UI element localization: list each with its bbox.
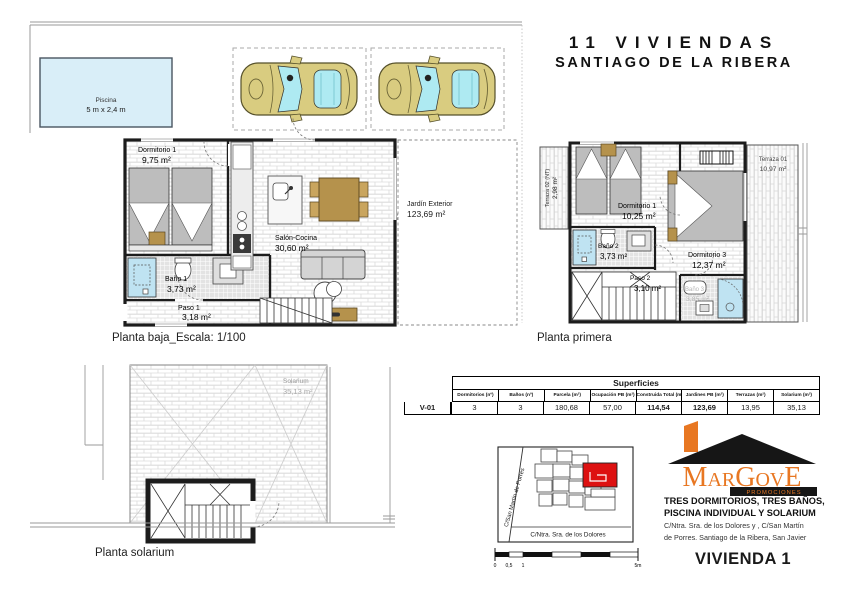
project-title: 11 VIVIENDAS SANTIAGO DE LA RIBERA [535, 33, 813, 71]
room-area: 3,73 m² [600, 252, 627, 261]
ground-floor-caption: Planta baja_Escala: 1/100 [112, 332, 246, 344]
shower [718, 279, 743, 318]
table-header-row: Dormitorios (nº) Baños (nº) Parcela (m²)… [452, 390, 820, 402]
table-cell: 3 [451, 402, 498, 415]
room-area: 3,18 m² [182, 312, 211, 322]
terrace-02-label: Terraza 02 (NT) [545, 169, 551, 208]
table-cell: 35,13 [774, 402, 820, 415]
sofa [301, 250, 365, 279]
room-area: 12,37 m² [692, 260, 726, 270]
pool: Piscina 5 m x 2,4 m [40, 58, 172, 127]
room-label: Baño 2 [598, 243, 619, 250]
car-icon [379, 56, 495, 122]
room-label: Paso 1 [178, 305, 200, 312]
column-header: Baños (nº) [499, 390, 545, 402]
radiator-icon [700, 151, 733, 164]
garden-area: 123,69 m² [407, 209, 445, 219]
terrace-01-label: Terraza 01 [759, 157, 788, 163]
room-area: 35,13 m² [283, 387, 313, 396]
table-cell: 57,00 [590, 402, 636, 415]
column-header: Dormitorios (nº) [453, 390, 499, 402]
room-label: Dormitorio 1 [138, 147, 176, 154]
first-floor-caption: Planta primera [537, 332, 612, 344]
stairs [572, 272, 676, 320]
room-label: Salón-Cocina [275, 235, 317, 242]
column-header: Solarium (m²) [774, 390, 819, 402]
terrace-02: Terraza 02 (NT) 2,98 m² [540, 147, 568, 229]
kitchen-counter [231, 142, 253, 270]
chimney-shape [684, 421, 698, 452]
address-line: de Porres. Santiago de la Ribera, San Ja… [664, 533, 822, 543]
features-line: PISCINA INDIVIDUAL Y SOLARIUM [664, 508, 822, 520]
bed-double [668, 171, 743, 241]
row-label: V-01 [404, 402, 451, 415]
room-area: 9,75 m² [142, 155, 171, 165]
surfaces-table: Superficies Dormitorios (nº) Baños (nº) … [404, 376, 820, 415]
column-header: Parcela (m²) [545, 390, 591, 402]
room-label: Baño 3 [685, 287, 705, 293]
room-area: 3,85 m² [686, 296, 710, 303]
ground-floor-plan: Piscina 5 m x 2,4 m [25, 18, 525, 330]
scale-tick: 1 [522, 563, 525, 569]
highlighted-parcel [583, 463, 617, 487]
kitchen-island [268, 176, 302, 224]
column-header: Terrazas (m²) [728, 390, 774, 402]
terrace-01-area: 10,97 m² [760, 166, 788, 173]
project-title-line1: 11 VIVIENDAS [535, 33, 813, 53]
table-cell: 114,54 [636, 402, 682, 415]
scale-tick: 5m [635, 563, 642, 569]
project-title-line2: SANTIAGO DE LA RIBERA [535, 55, 813, 71]
stairs [260, 298, 332, 323]
solarium-plan: Solarium 35,13 m² [25, 353, 410, 578]
room-area: 3,10 m² [634, 284, 661, 293]
solarium-caption: Planta solarium [95, 547, 174, 559]
shower [128, 258, 156, 297]
site-map: C/Ntra. Sra. de los Dolores C/San Martín… [493, 443, 648, 578]
column-header: Jardines PB (m²) [682, 390, 728, 402]
unit-label: VIVIENDA 1 [664, 550, 822, 569]
street-bottom-label: C/Ntra. Sra. de los Dolores [530, 532, 605, 539]
room-area: 10,25 m² [622, 211, 656, 221]
car-icon [241, 56, 357, 122]
scale-bar: 0 0,5 1 5m [494, 548, 642, 569]
terrace-02-area: 2,98 m² [552, 176, 559, 199]
table-cell: 3 [498, 402, 544, 415]
plan-sheet: 11 VIVIENDAS SANTIAGO DE LA RIBERA Pisci… [0, 0, 842, 595]
table-cell: 123,69 [682, 402, 728, 415]
table-cell: 180,68 [544, 402, 590, 415]
garden-label: Jardín Exterior [407, 201, 453, 208]
room-label: Solarium [283, 378, 309, 385]
features-line: TRES DORMITORIOS, TRES BAÑOS, [664, 496, 822, 508]
dining-table [310, 178, 368, 221]
room-label: Dormitorio 1 [618, 203, 656, 210]
garden: Jardín Exterior 123,69 m² [398, 140, 517, 325]
table-value-row: V-01 3 3 180,68 57,00 114,54 123,69 13,9… [404, 402, 820, 415]
room-area: 30,60 m² [275, 243, 309, 253]
table-cell: 13,95 [728, 402, 774, 415]
room-label: Dormitorio 3 [688, 252, 726, 259]
site-boundary [85, 365, 103, 480]
pool-label: Piscina [96, 97, 117, 104]
room-label: Baño 1 [165, 276, 187, 283]
table-title: Superficies [452, 376, 820, 390]
brand-block: MarGovE PROMOCIONES TRES DORMITORIOS, TR… [664, 420, 822, 569]
margove-logo: MarGovE PROMOCIONES [664, 420, 822, 496]
room-area: 3,73 m² [167, 284, 196, 294]
scale-tick: 0 [494, 563, 497, 569]
column-header: Ocupación PB (m²) [591, 390, 637, 402]
site-boundary [798, 143, 807, 322]
address-line: C/Ntra. Sra. de los Dolores y , C/San Ma… [664, 521, 822, 531]
terrace-01: Terraza 01 10,97 m² [747, 145, 798, 322]
column-header: Construida Total (m²) [637, 390, 683, 402]
first-floor-plan: Terraza 02 (NT) 2,98 m² [530, 135, 830, 335]
pool-dimensions: 5 m x 2,4 m [86, 105, 125, 114]
room-label: Paso 2 [630, 275, 651, 282]
scale-tick: 0,5 [506, 563, 513, 569]
